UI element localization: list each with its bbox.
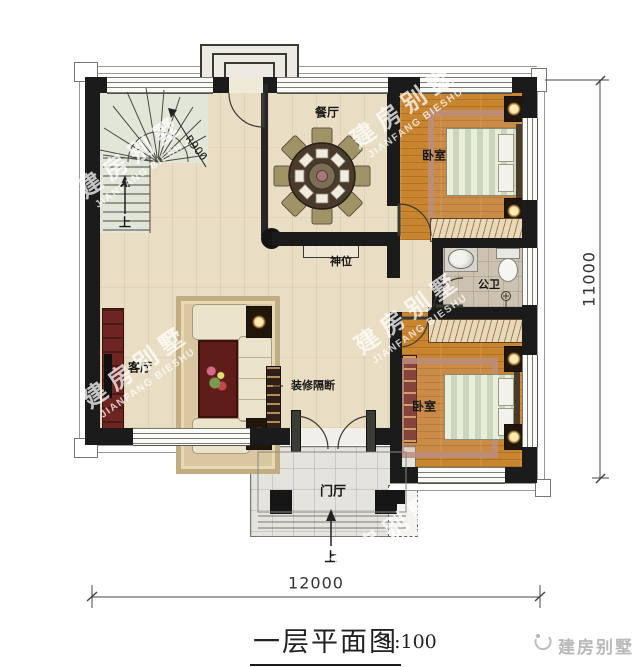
dim-width-label: 12000 <box>288 574 344 593</box>
porch-column-left <box>270 490 292 514</box>
foyer-door-leaf-right <box>366 410 376 452</box>
wall-dining-south <box>272 232 398 246</box>
window-right-bath <box>522 248 538 305</box>
wall-bedroom2-left <box>390 312 402 483</box>
dim-height-label: 11000 <box>580 251 599 307</box>
label-bathroom: 公卫 <box>478 276 500 292</box>
wall-bath-left <box>432 238 443 307</box>
bedroom-top-nightstand-1 <box>504 96 524 122</box>
corner-notch-br <box>535 479 551 497</box>
floor-plan: 餐厅 卧室 公卫 神位 客厅 装修隔断 卧室 门厅 上 上 R900 12000… <box>0 0 640 667</box>
bedroom-bottom-pillow-1 <box>498 378 514 406</box>
toilet-bowl <box>498 258 518 282</box>
bedroom-bottom-nightstand-2 <box>504 424 524 450</box>
wall-bath-bottom <box>428 307 522 319</box>
sink-basin <box>448 249 474 269</box>
wall-bath-top <box>432 238 522 248</box>
scale-label: 1:100 <box>382 631 437 653</box>
window-top-2 <box>277 77 388 94</box>
tv-screen <box>104 354 112 398</box>
label-bedroom-top: 卧室 <box>422 147 446 164</box>
window-bottom-bedroom <box>418 467 505 484</box>
label-shrine: 神位 <box>330 253 352 269</box>
wall-left <box>85 77 100 445</box>
coffee-table-flowers <box>204 362 228 392</box>
bedroom-bottom-wardrobe <box>428 319 524 343</box>
porch-column-right <box>375 490 397 514</box>
label-living: 客厅 <box>128 359 152 376</box>
brand-name: 建房别墅 <box>558 633 634 658</box>
bedroom-bottom-nightstand-1 <box>504 346 524 372</box>
window-top-1 <box>107 77 213 94</box>
wall-stair-partition <box>261 84 268 236</box>
wall-bedroom1-left-lower <box>387 236 400 278</box>
label-dining: 餐厅 <box>315 104 339 121</box>
label-porch-up: 上 <box>324 547 337 566</box>
label-bedroom-bottom: 卧室 <box>412 398 436 415</box>
sofa-top <box>192 304 250 340</box>
bedroom-top-pillow-1 <box>498 134 514 162</box>
brand-logo-icon <box>531 630 553 657</box>
label-partition: 装修隔断 <box>291 377 335 393</box>
entry-door-opening <box>229 77 263 93</box>
foyer-door-opening <box>290 428 374 445</box>
wall-bedroom1-left-upper <box>387 84 400 206</box>
corner-table-lamp-top <box>246 306 272 338</box>
window-right-bedroom2 <box>522 355 538 447</box>
bedroom-top-pillow-2 <box>498 164 514 192</box>
trim-bottom-bedroom <box>390 483 543 491</box>
label-foyer: 门厅 <box>320 481 346 500</box>
foyer-door-leaf-left <box>291 410 301 452</box>
window-top-3 <box>420 77 512 94</box>
page-title: 一层平面图 <box>250 620 401 666</box>
label-stairs-up: 上 <box>119 214 131 231</box>
trim-top <box>85 66 537 74</box>
window-right-bedroom1 <box>522 118 538 200</box>
window-bottom-living <box>133 428 250 446</box>
dimension-right <box>545 76 609 483</box>
trim-right <box>537 77 545 483</box>
